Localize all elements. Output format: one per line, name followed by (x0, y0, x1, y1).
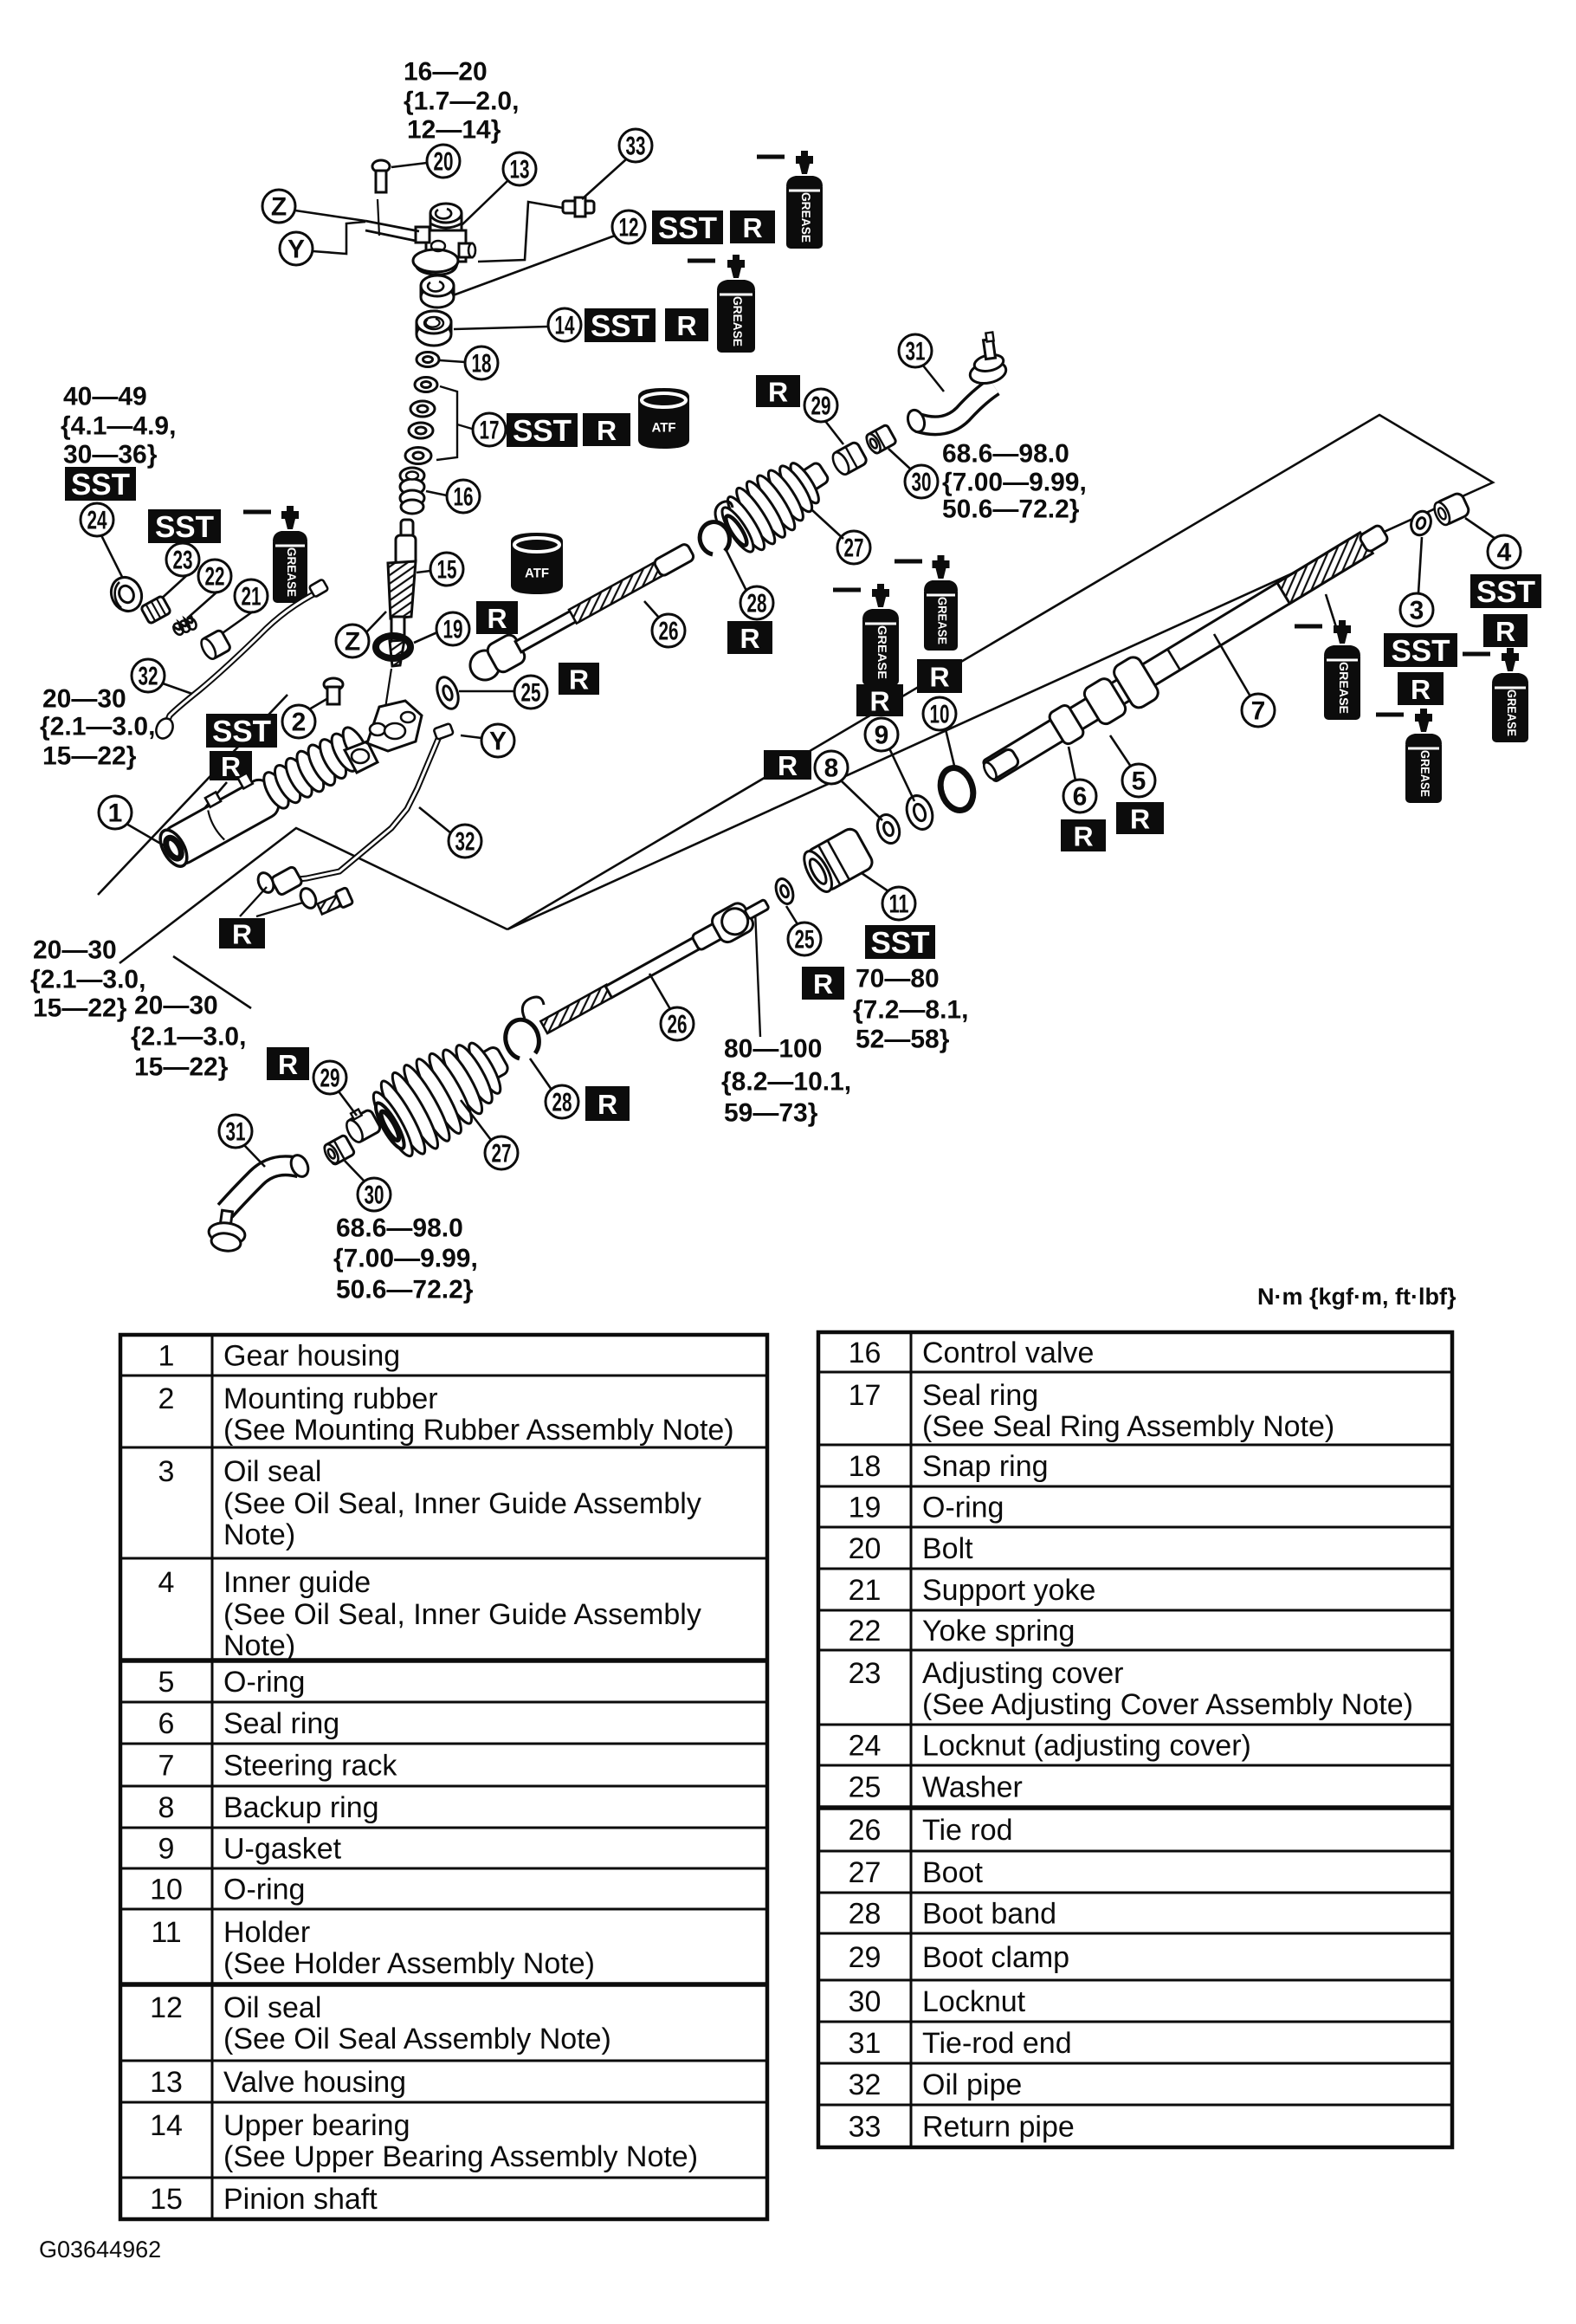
svg-text:12: 12 (150, 1991, 183, 2024)
svg-text:Upper bearing: Upper bearing (223, 2109, 410, 2142)
svg-text:28: 28 (849, 1898, 882, 1931)
svg-text:Boot: Boot (922, 1856, 983, 1889)
svg-text:ATF: ATF (525, 566, 549, 581)
svg-text:R: R (676, 310, 696, 341)
svg-text:{7.2—8.1,: {7.2—8.1, (853, 996, 968, 1025)
svg-text:R: R (232, 919, 252, 950)
svg-text:20: 20 (849, 1532, 882, 1565)
svg-text:R: R (487, 603, 507, 634)
svg-text:30: 30 (849, 1985, 882, 2018)
svg-text:10: 10 (150, 1874, 183, 1906)
svg-text:Oil seal: Oil seal (223, 1455, 321, 1488)
svg-text:17: 17 (849, 1379, 882, 1412)
svg-text:12—14}: 12—14} (407, 116, 501, 145)
svg-text:R: R (1073, 821, 1093, 852)
svg-text:GREASE: GREASE (285, 547, 299, 597)
svg-text:GREASE: GREASE (1337, 662, 1351, 714)
svg-text:(See Adjusting Cover Assembly: (See Adjusting Cover Assembly Note) (922, 1688, 1413, 1721)
svg-text:Tie-rod end: Tie-rod end (922, 2027, 1072, 2060)
svg-text:Backup ring: Backup ring (223, 1791, 379, 1824)
svg-text:Gear housing: Gear housing (223, 1340, 400, 1373)
svg-text:R: R (813, 968, 833, 1000)
svg-text:20—30: 20—30 (134, 992, 218, 1020)
svg-text:R: R (1411, 674, 1431, 705)
svg-text:12: 12 (619, 214, 639, 243)
svg-text:Locknut: Locknut (922, 1985, 1026, 2018)
svg-text:SST: SST (155, 510, 214, 544)
svg-text:19: 19 (443, 616, 463, 644)
svg-text:Z: Z (271, 193, 287, 222)
svg-text:52—58}: 52—58} (856, 1026, 950, 1054)
svg-text:R: R (569, 664, 589, 696)
svg-text:19: 19 (849, 1492, 882, 1525)
svg-text:9: 9 (875, 722, 889, 750)
svg-text:8: 8 (158, 1791, 175, 1824)
svg-text:Return pipe: Return pipe (922, 2111, 1075, 2144)
svg-text:15: 15 (437, 556, 457, 585)
svg-text:GREASE: GREASE (799, 192, 813, 243)
svg-text:GREASE: GREASE (731, 296, 745, 346)
svg-text:24: 24 (849, 1730, 882, 1763)
svg-text:(See Seal Ring Assembly Note): (See Seal Ring Assembly Note) (922, 1410, 1334, 1443)
svg-text:4: 4 (1497, 539, 1512, 567)
svg-text:29: 29 (811, 392, 831, 421)
svg-text:4: 4 (158, 1566, 175, 1599)
svg-text:R: R (740, 623, 759, 654)
svg-text:1: 1 (158, 1340, 175, 1373)
svg-text:23: 23 (849, 1657, 882, 1690)
svg-text:22: 22 (849, 1615, 882, 1648)
svg-text:20—30: 20—30 (33, 936, 117, 965)
svg-text:{2.1—3.0,: {2.1—3.0, (40, 713, 155, 741)
svg-text:Oil seal: Oil seal (223, 1991, 321, 2024)
svg-text:{2.1—3.0,: {2.1—3.0, (30, 966, 145, 994)
svg-text:23: 23 (173, 547, 193, 575)
svg-text:Washer: Washer (922, 1771, 1023, 1804)
svg-text:Control valve: Control valve (922, 1337, 1094, 1369)
svg-text:(See Oil Seal, Inner Guide Ass: (See Oil Seal, Inner Guide Assembly (223, 1487, 701, 1520)
svg-text:6: 6 (158, 1707, 175, 1740)
svg-text:25: 25 (521, 679, 541, 708)
svg-text:8: 8 (824, 754, 839, 783)
svg-text:24: 24 (87, 507, 107, 535)
svg-text:31: 31 (226, 1118, 246, 1147)
svg-text:2: 2 (158, 1382, 175, 1415)
svg-text:11: 11 (889, 890, 909, 919)
svg-text:R: R (597, 415, 617, 446)
svg-text:68.6—98.0: 68.6—98.0 (942, 440, 1069, 469)
svg-text:O-ring: O-ring (223, 1874, 305, 1906)
svg-text:{8.2—10.1,: {8.2—10.1, (721, 1068, 851, 1097)
svg-text:31: 31 (849, 2027, 882, 2060)
svg-text:GREASE: GREASE (1418, 750, 1432, 797)
svg-text:26: 26 (849, 1814, 882, 1847)
svg-text:R: R (869, 686, 889, 717)
svg-text:Boot clamp: Boot clamp (922, 1941, 1069, 1974)
svg-text:15—22}: 15—22} (33, 994, 127, 1023)
svg-text:Seal ring: Seal ring (223, 1707, 339, 1740)
svg-text:30: 30 (365, 1181, 384, 1210)
svg-text:70—80: 70—80 (856, 965, 940, 994)
svg-text:17: 17 (480, 417, 500, 445)
svg-text:GREASE: GREASE (936, 597, 950, 644)
svg-text:Mounting rubber: Mounting rubber (223, 1382, 438, 1415)
svg-text:{7.00—9.99,: {7.00—9.99, (942, 469, 1087, 497)
svg-text:30—36}: 30—36} (63, 441, 158, 469)
svg-text:R: R (929, 662, 949, 693)
svg-text:29: 29 (849, 1941, 882, 1974)
svg-text:26: 26 (659, 618, 679, 646)
svg-text:Seal ring: Seal ring (922, 1379, 1038, 1412)
svg-text:Boot band: Boot band (922, 1898, 1056, 1931)
svg-text:R: R (768, 377, 788, 408)
svg-text:R: R (1130, 804, 1150, 835)
svg-text:15—22}: 15—22} (134, 1053, 229, 1082)
svg-text:SST: SST (1476, 575, 1535, 609)
svg-text:Adjusting cover: Adjusting cover (922, 1657, 1123, 1690)
svg-text:40—49: 40—49 (63, 383, 147, 411)
svg-text:G03644962: G03644962 (39, 2237, 161, 2263)
svg-text:26: 26 (668, 1011, 688, 1039)
svg-text:32: 32 (455, 828, 475, 857)
svg-text:GREASE: GREASE (1505, 689, 1519, 736)
svg-text:20: 20 (434, 148, 454, 177)
svg-text:SST: SST (212, 715, 271, 748)
svg-text:33: 33 (849, 2111, 882, 2144)
svg-text:Y: Y (489, 728, 507, 756)
svg-text:21: 21 (242, 583, 262, 612)
svg-text:U-gasket: U-gasket (223, 1833, 342, 1866)
svg-text:O-ring: O-ring (922, 1492, 1004, 1525)
svg-text:27: 27 (849, 1856, 882, 1889)
svg-text:Valve housing: Valve housing (223, 2066, 406, 2099)
svg-text:68.6—98.0: 68.6—98.0 (336, 1214, 463, 1243)
svg-text:Snap ring: Snap ring (922, 1450, 1049, 1483)
svg-text:28: 28 (747, 590, 767, 618)
svg-text:Support yoke: Support yoke (922, 1574, 1095, 1607)
svg-text:(See Oil Seal Assembly Note): (See Oil Seal Assembly Note) (223, 2023, 611, 2055)
svg-text:R: R (742, 212, 762, 243)
svg-text:Pinion shaft: Pinion shaft (223, 2183, 378, 2216)
svg-text:Yoke spring: Yoke spring (922, 1615, 1075, 1648)
svg-text:7: 7 (158, 1750, 175, 1783)
svg-text:16: 16 (849, 1337, 882, 1369)
svg-text:Inner guide: Inner guide (223, 1566, 371, 1599)
svg-text:Z: Z (345, 628, 360, 657)
svg-text:1: 1 (108, 799, 123, 828)
svg-text:Note): Note) (223, 1518, 295, 1551)
svg-text:Note): Note) (223, 1629, 295, 1662)
svg-text:N·m {kgf·m, ft·lbf}: N·m {kgf·m, ft·lbf} (1257, 1284, 1457, 1310)
svg-text:(See Mounting Rubber Assembly: (See Mounting Rubber Assembly Note) (223, 1414, 734, 1447)
svg-text:20—30: 20—30 (42, 685, 126, 714)
svg-text:3: 3 (158, 1455, 175, 1488)
svg-text:R: R (1495, 616, 1515, 647)
svg-text:Y: Y (287, 236, 305, 264)
svg-text:11: 11 (151, 1916, 181, 1949)
svg-text:{2.1—3.0,: {2.1—3.0, (131, 1023, 246, 1052)
svg-text:9: 9 (158, 1833, 175, 1866)
svg-text:6: 6 (1073, 783, 1088, 812)
svg-text:Oil pipe: Oil pipe (922, 2068, 1022, 2101)
svg-text:27: 27 (844, 534, 864, 563)
svg-text:5: 5 (158, 1666, 175, 1699)
svg-text:SST: SST (513, 414, 572, 448)
svg-text:29: 29 (320, 1065, 340, 1093)
svg-text:59—73}: 59—73} (724, 1099, 818, 1128)
svg-text:{1.7—2.0,: {1.7—2.0, (404, 87, 519, 116)
svg-text:50.6—72.2}: 50.6—72.2} (942, 495, 1080, 524)
svg-text:14: 14 (150, 2109, 183, 2142)
svg-text:16: 16 (454, 483, 474, 512)
svg-text:{7.00—9.99,: {7.00—9.99, (333, 1245, 478, 1273)
svg-text:32: 32 (849, 2068, 882, 2101)
svg-text:22: 22 (205, 563, 225, 592)
svg-text:Steering rack: Steering rack (223, 1750, 397, 1783)
svg-text:O-ring: O-ring (223, 1666, 305, 1699)
svg-text:5: 5 (1132, 767, 1146, 796)
svg-text:31: 31 (906, 338, 926, 366)
svg-text:SST: SST (591, 309, 649, 343)
svg-text:2: 2 (292, 709, 307, 737)
svg-text:(See Oil Seal, Inner Guide Ass: (See Oil Seal, Inner Guide Assembly (223, 1598, 701, 1631)
svg-text:SST: SST (658, 211, 717, 245)
svg-text:15: 15 (150, 2183, 183, 2216)
svg-text:13: 13 (510, 156, 530, 184)
svg-text:ATF: ATF (651, 421, 675, 436)
svg-text:32: 32 (139, 663, 158, 691)
svg-text:7: 7 (1251, 697, 1266, 726)
svg-text:Tie rod: Tie rod (922, 1814, 1013, 1847)
svg-text:SST: SST (71, 468, 130, 502)
svg-text:R: R (778, 750, 798, 781)
svg-text:50.6—72.2}: 50.6—72.2} (336, 1276, 474, 1304)
svg-text:R: R (597, 1089, 617, 1120)
svg-text:{4.1—4.9,: {4.1—4.9, (61, 412, 176, 441)
svg-text:SST: SST (870, 926, 929, 960)
svg-text:18: 18 (849, 1450, 882, 1483)
svg-text:33: 33 (626, 133, 646, 161)
svg-text:Holder: Holder (223, 1916, 310, 1949)
svg-text:27: 27 (492, 1140, 512, 1168)
svg-text:GREASE: GREASE (875, 625, 889, 679)
svg-text:3: 3 (1410, 597, 1424, 625)
svg-text:15—22}: 15—22} (42, 742, 137, 771)
svg-text:13: 13 (150, 2066, 183, 2099)
svg-text:SST: SST (1391, 634, 1450, 668)
svg-text:14: 14 (555, 312, 575, 340)
svg-text:R: R (278, 1049, 298, 1080)
svg-text:30: 30 (912, 469, 932, 497)
svg-text:28: 28 (552, 1089, 572, 1117)
svg-text:80—100: 80—100 (724, 1035, 822, 1064)
svg-text:Bolt: Bolt (922, 1532, 973, 1565)
svg-text:(See Upper Bearing Assembly No: (See Upper Bearing Assembly Note) (223, 2140, 698, 2173)
svg-text:16—20: 16—20 (404, 58, 488, 87)
svg-text:(See Holder Assembly Note): (See Holder Assembly Note) (223, 1947, 595, 1980)
svg-text:21: 21 (849, 1574, 882, 1607)
svg-text:25: 25 (795, 926, 815, 955)
svg-text:Locknut (adjusting cover): Locknut (adjusting cover) (922, 1730, 1251, 1763)
svg-text:18: 18 (472, 350, 492, 379)
svg-text:25: 25 (849, 1771, 882, 1804)
svg-text:10: 10 (930, 701, 950, 729)
